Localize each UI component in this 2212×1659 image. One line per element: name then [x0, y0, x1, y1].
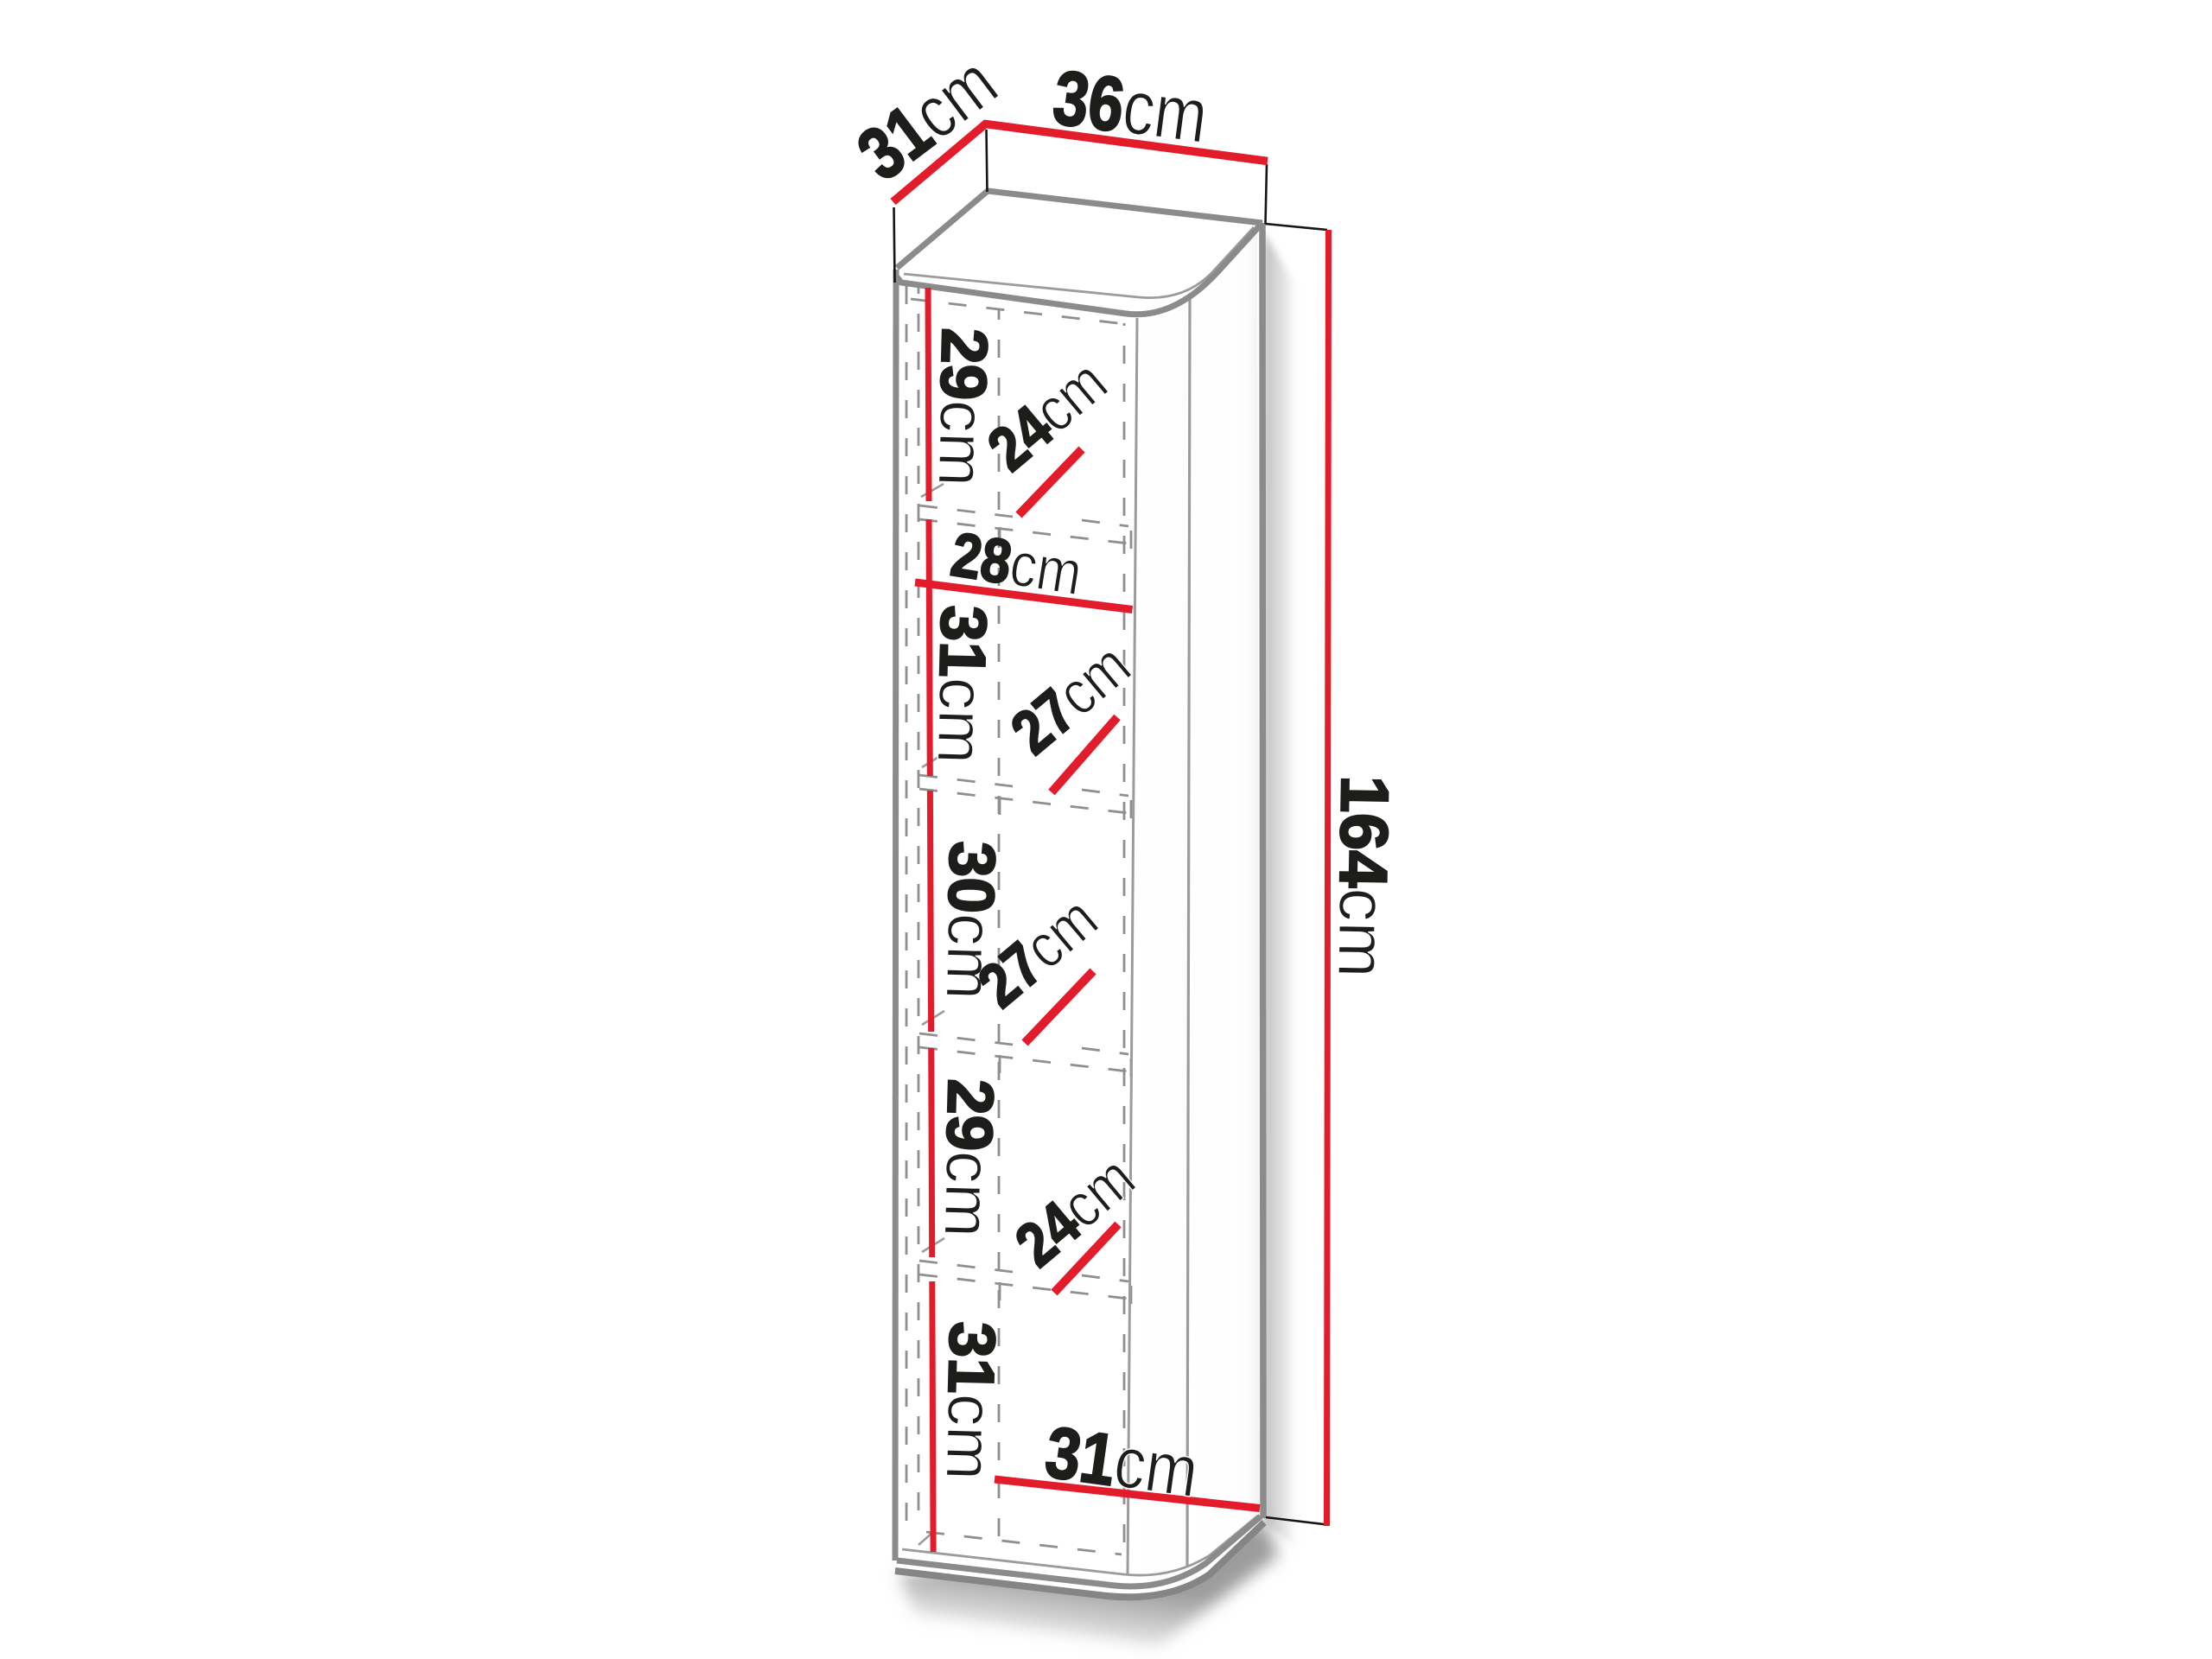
svg-text:164cm: 164cm [1324, 775, 1403, 979]
svg-text:29cm: 29cm [931, 1078, 1007, 1239]
svg-text:31cm: 31cm [924, 605, 1001, 766]
svg-text:31cm: 31cm [932, 1321, 1009, 1482]
svg-text:29cm: 29cm [925, 327, 1001, 488]
